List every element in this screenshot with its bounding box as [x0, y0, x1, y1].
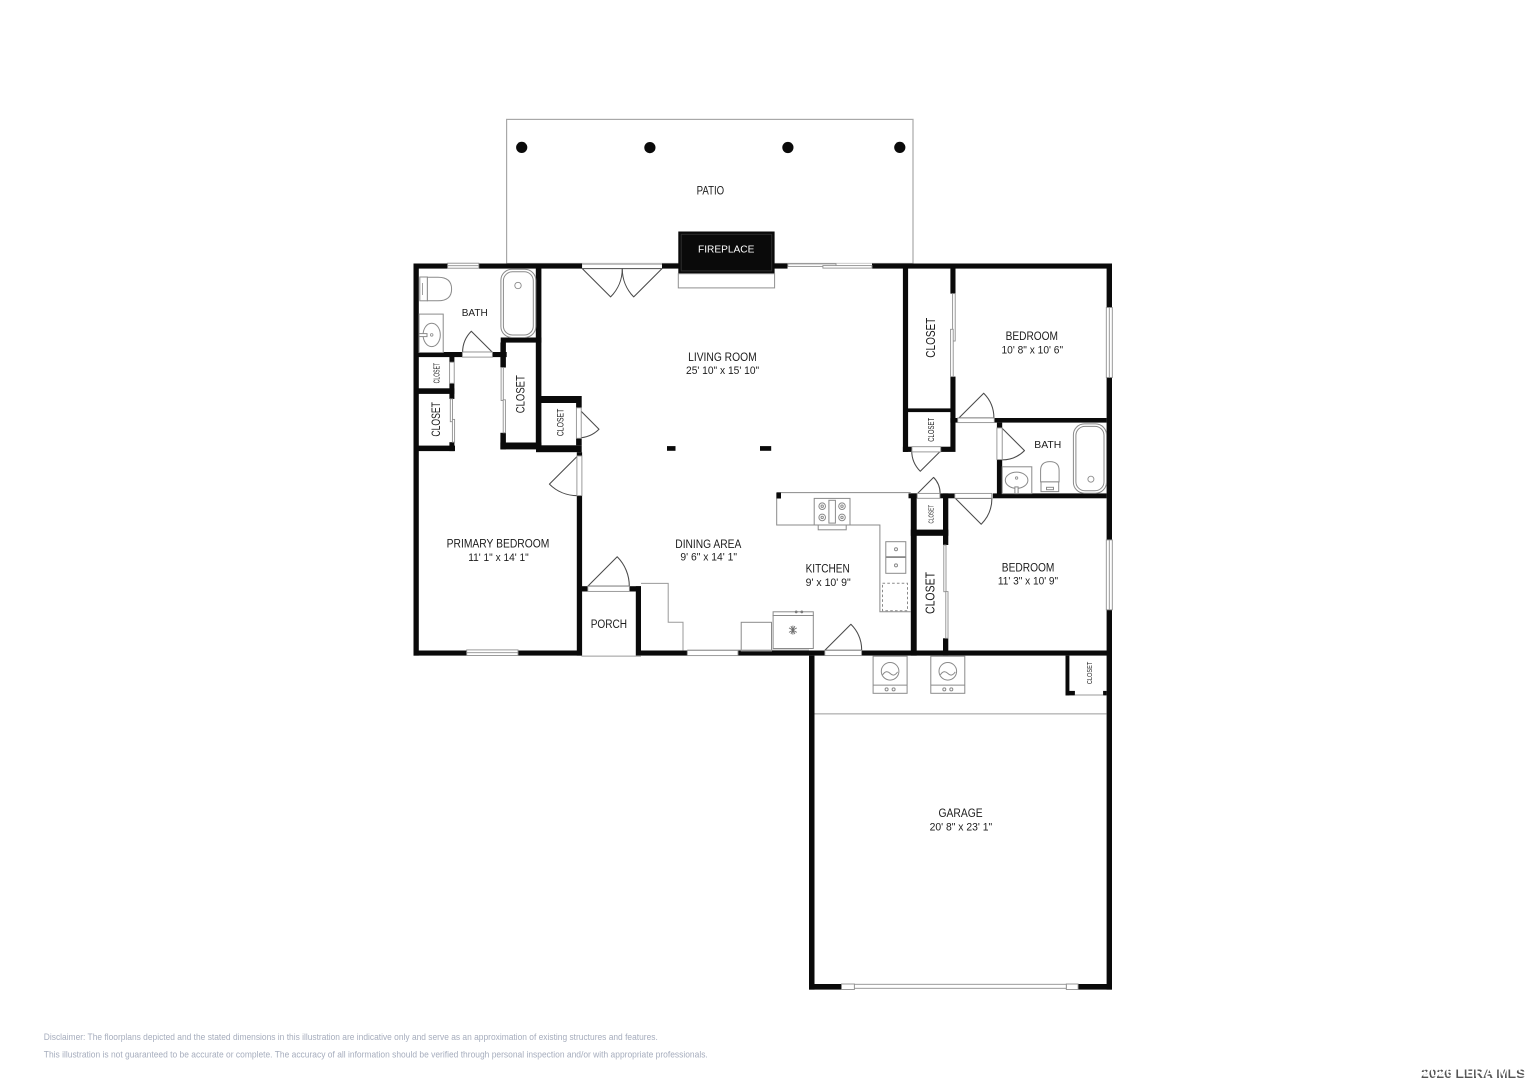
svg-text:BEDROOM: BEDROOM — [1002, 560, 1055, 574]
svg-text:CLOSET: CLOSET — [556, 408, 566, 436]
svg-text:CLOSET: CLOSET — [515, 375, 527, 413]
svg-text:GARAGE: GARAGE — [939, 806, 983, 820]
svg-text:CLOSET: CLOSET — [429, 402, 443, 437]
svg-text:KITCHEN: KITCHEN — [806, 561, 850, 575]
svg-text:2026 LERA MLS: 2026 LERA MLS — [1423, 1066, 1527, 1080]
svg-text:9' 6" x 14' 1": 9' 6" x 14' 1" — [680, 552, 737, 564]
svg-text:CLOSET: CLOSET — [927, 505, 936, 524]
svg-text:BATH: BATH — [1034, 440, 1061, 451]
svg-text:DINING AREA: DINING AREA — [675, 537, 742, 551]
svg-text:FIREPLACE: FIREPLACE — [698, 245, 755, 256]
svg-text:CLOSET: CLOSET — [923, 318, 938, 358]
svg-text:BEDROOM: BEDROOM — [1006, 329, 1058, 343]
svg-text:PATIO: PATIO — [697, 183, 725, 197]
svg-text:20' 8" x 23' 1": 20' 8" x 23' 1" — [930, 821, 993, 833]
svg-text:LIVING ROOM: LIVING ROOM — [688, 350, 757, 364]
svg-text:PRIMARY BEDROOM: PRIMARY BEDROOM — [447, 537, 550, 551]
svg-text:CLOSET: CLOSET — [1087, 661, 1094, 684]
svg-text:10' 8" x 10' 6": 10' 8" x 10' 6" — [1002, 345, 1064, 357]
svg-text:This illustration is not guara: This illustration is not guaranteed to b… — [44, 1049, 708, 1060]
svg-text:11' 3" x 10' 9": 11' 3" x 10' 9" — [998, 576, 1058, 588]
svg-text:PORCH: PORCH — [591, 617, 627, 631]
svg-text:25' 10" x 15' 10": 25' 10" x 15' 10" — [686, 365, 759, 377]
svg-text:CLOSET: CLOSET — [923, 572, 938, 614]
svg-text:Disclaimer: The floorplans dep: Disclaimer: The floorplans depicted and … — [44, 1032, 658, 1043]
svg-text:11' 1" x 14' 1": 11' 1" x 14' 1" — [468, 552, 528, 564]
svg-text:9' x 10' 9": 9' x 10' 9" — [806, 577, 851, 589]
svg-text:CLOSET: CLOSET — [927, 418, 936, 442]
svg-text:BATH: BATH — [462, 308, 488, 319]
svg-text:CLOSET: CLOSET — [431, 363, 441, 384]
